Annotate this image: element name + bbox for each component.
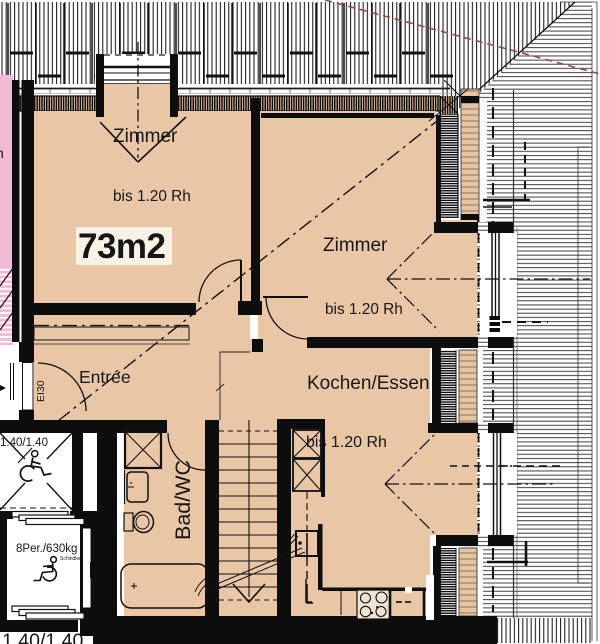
svg-text:n: n bbox=[0, 145, 4, 161]
svg-text:1.40/1.40: 1.40/1.40 bbox=[0, 437, 48, 449]
svg-text:1.40/1.40: 1.40/1.40 bbox=[2, 630, 83, 644]
svg-text:73m2: 73m2 bbox=[78, 227, 166, 266]
svg-text:Bad/WC: Bad/WC bbox=[171, 460, 195, 540]
svg-text:bis 1.20 Rh: bis 1.20 Rh bbox=[113, 188, 191, 205]
svg-text:8Per./630kg: 8Per./630kg bbox=[16, 543, 77, 555]
svg-text:EI30: EI30 bbox=[35, 380, 47, 402]
svg-text:Zimmer: Zimmer bbox=[323, 235, 388, 256]
svg-text:Entrée: Entrée bbox=[79, 367, 131, 387]
svg-text:Schindler: Schindler bbox=[60, 556, 81, 562]
svg-text:Kochen/Essen: Kochen/Essen bbox=[307, 373, 430, 394]
svg-text:Zimmer: Zimmer bbox=[113, 126, 178, 147]
svg-text:bis 1.20 Rh: bis 1.20 Rh bbox=[306, 434, 387, 451]
svg-text:bis 1.20 Rh: bis 1.20 Rh bbox=[325, 301, 403, 318]
